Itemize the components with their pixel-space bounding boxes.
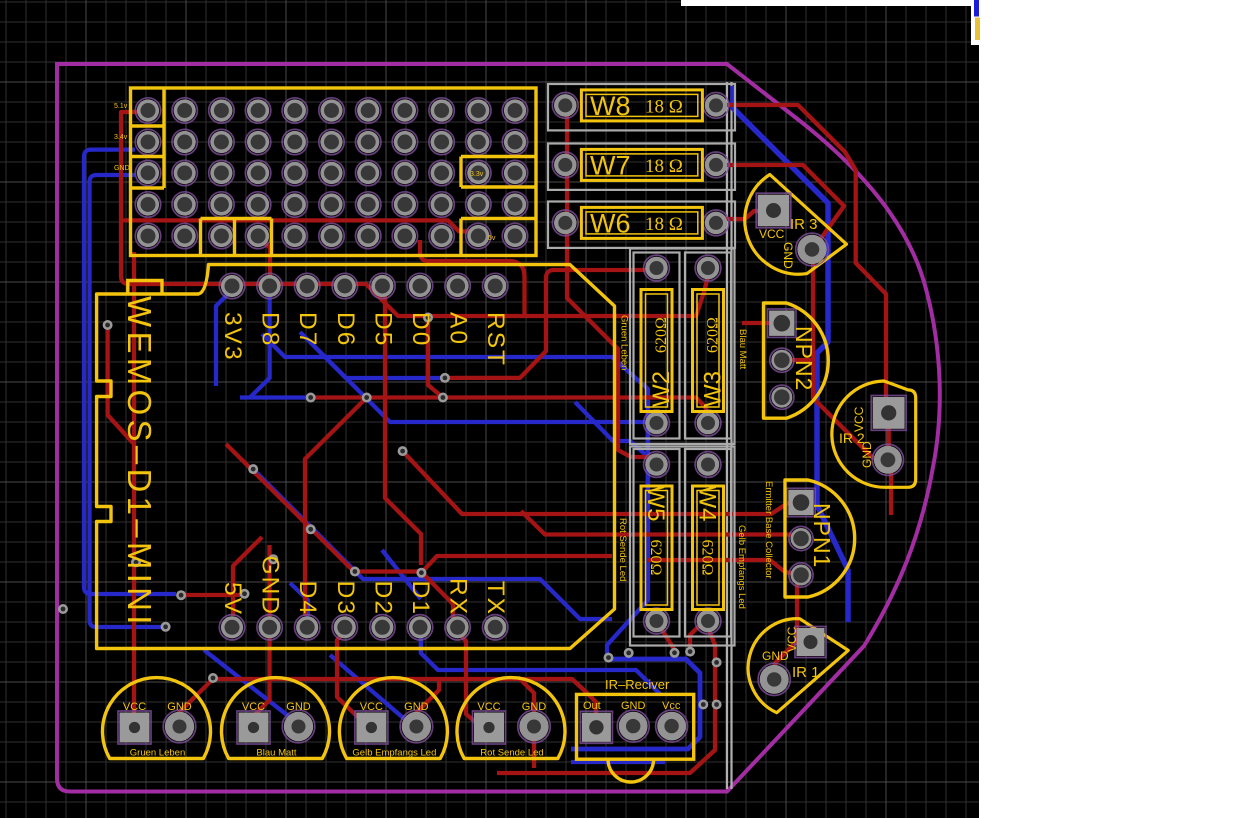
svg-text:620Ω: 620Ω <box>653 317 670 353</box>
svg-text:W4: W4 <box>694 486 721 522</box>
svg-text:D2: D2 <box>369 581 396 616</box>
svg-text:IR 3: IR 3 <box>790 216 818 233</box>
svg-text:D6: D6 <box>332 312 359 347</box>
svg-text:W2: W2 <box>648 371 675 407</box>
svg-text:D1: D1 <box>407 581 434 616</box>
svg-text:D4: D4 <box>294 581 321 616</box>
svg-text:Gelb Empfangs Led: Gelb Empfangs Led <box>352 748 436 759</box>
svg-text:NPN2: NPN2 <box>791 326 817 391</box>
svg-text:D8: D8 <box>257 312 284 347</box>
svg-text:Blau Matt: Blau Matt <box>737 329 748 369</box>
svg-text:VCC: VCC <box>759 227 785 241</box>
svg-text:RX: RX <box>445 578 472 616</box>
svg-text:RST: RST <box>482 312 509 367</box>
svg-text:GND: GND <box>781 242 795 269</box>
svg-text:GND: GND <box>167 701 192 713</box>
svg-text:VCC: VCC <box>785 626 799 652</box>
svg-text:Gruen Leben: Gruen Leben <box>619 315 630 370</box>
svg-text:WEMOS–D1–MINI: WEMOS–D1–MINI <box>121 296 158 629</box>
svg-text:18 Ω: 18 Ω <box>645 156 683 177</box>
svg-text:A0: A0 <box>445 312 472 346</box>
svg-text:VCC: VCC <box>242 701 265 713</box>
svg-text:VCC: VCC <box>123 701 146 713</box>
svg-text:Rot Sende Led: Rot Sende Led <box>480 748 543 759</box>
svg-text:3V3: 3V3 <box>219 312 246 362</box>
svg-text:TX: TX <box>482 581 509 616</box>
svg-text:Gruen Leben: Gruen Leben <box>130 748 185 759</box>
svg-text:Out: Out <box>583 700 601 712</box>
svg-text:620Ω: 620Ω <box>647 540 664 576</box>
svg-text:D0: D0 <box>407 312 434 347</box>
svg-text:GND: GND <box>114 165 130 172</box>
svg-text:NPN1: NPN1 <box>809 503 835 568</box>
svg-text:620Ω: 620Ω <box>699 540 716 576</box>
svg-text:3.3v: 3.3v <box>470 171 484 178</box>
svg-text:Blau Matt: Blau Matt <box>256 748 296 759</box>
svg-text:5v: 5v <box>488 235 496 242</box>
svg-text:GND: GND <box>286 701 311 713</box>
svg-text:GND: GND <box>522 701 547 713</box>
svg-text:IR 1: IR 1 <box>792 664 820 681</box>
svg-text:W7: W7 <box>590 150 631 180</box>
svg-text:GND: GND <box>860 441 874 468</box>
svg-text:W8: W8 <box>590 91 631 121</box>
svg-text:GND: GND <box>621 700 646 712</box>
svg-text:3.4v: 3.4v <box>114 134 128 141</box>
svg-text:Vcc: Vcc <box>662 700 681 712</box>
svg-text:W6: W6 <box>590 208 631 238</box>
svg-text:Rot Sende Led: Rot Sende Led <box>617 518 628 581</box>
svg-text:D3: D3 <box>332 581 359 616</box>
svg-text:Gelb Empfangs Led: Gelb Empfangs Led <box>736 525 747 609</box>
svg-text:VCC: VCC <box>852 406 866 432</box>
svg-text:GND: GND <box>404 701 429 713</box>
svg-text:5V: 5V <box>219 582 246 616</box>
svg-text:GND: GND <box>257 556 284 616</box>
svg-text:D7: D7 <box>294 312 321 347</box>
svg-text:IR–Reciver: IR–Reciver <box>605 677 670 692</box>
svg-text:W3: W3 <box>700 371 727 407</box>
svg-text:W5: W5 <box>642 486 669 522</box>
svg-text:620Ω: 620Ω <box>705 317 722 353</box>
svg-text:VCC: VCC <box>477 701 500 713</box>
svg-text:Ermitter Base Collector: Ermitter Base Collector <box>763 481 774 579</box>
svg-text:D5: D5 <box>369 312 396 347</box>
svg-text:18 Ω: 18 Ω <box>645 96 683 117</box>
svg-text:18 Ω: 18 Ω <box>645 214 683 235</box>
svg-text:VCC: VCC <box>360 701 383 713</box>
svg-text:5.1v: 5.1v <box>114 103 128 110</box>
